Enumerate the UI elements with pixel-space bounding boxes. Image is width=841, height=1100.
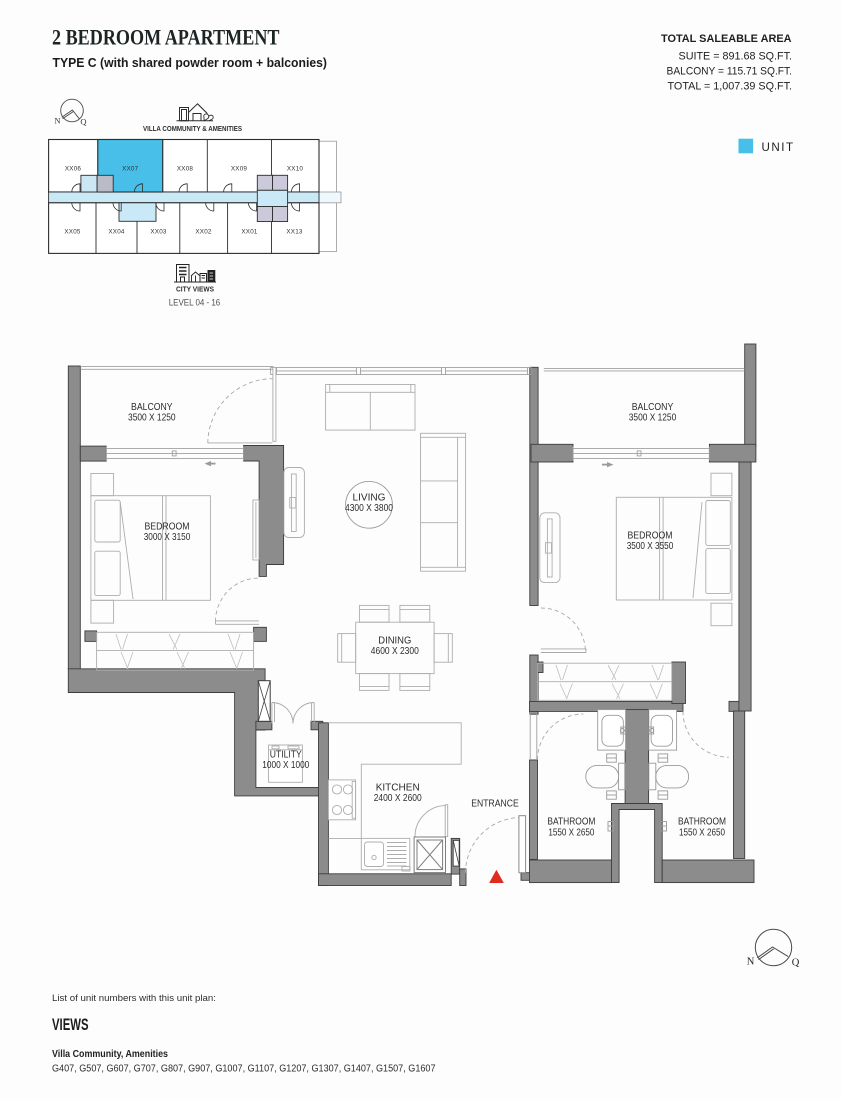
svg-text:3500 X 3550: 3500 X 3550 — [627, 541, 674, 552]
svg-text:KITCHEN: KITCHEN — [376, 783, 420, 794]
svg-text:Q: Q — [792, 958, 800, 969]
svg-text:3500 X 1250: 3500 X 1250 — [128, 412, 176, 423]
svg-text:XX01: XX01 — [241, 229, 258, 236]
svg-text:XX02: XX02 — [195, 229, 212, 236]
svg-text:G407, G507, G607, G707, G807,: G407, G507, G607, G707, G807, G907, G100… — [52, 1063, 436, 1074]
svg-text:BATHROOM: BATHROOM — [547, 817, 595, 828]
svg-text:Villa Community, Amenities: Villa Community, Amenities — [52, 1049, 168, 1060]
svg-text:XX09: XX09 — [231, 166, 248, 173]
svg-text:UTILITY: UTILITY — [270, 750, 302, 761]
svg-text:LIVING: LIVING — [353, 493, 386, 504]
svg-text:LEVEL 04 - 16: LEVEL 04 - 16 — [169, 298, 221, 308]
svg-text:1550 X 2650: 1550 X 2650 — [548, 828, 594, 839]
svg-text:XX10: XX10 — [287, 166, 304, 173]
svg-text:UNIT: UNIT — [762, 141, 795, 154]
svg-text:BALCONY = 115.71 SQ.FT.: BALCONY = 115.71 SQ.FT. — [667, 66, 793, 78]
svg-text:3000 X 3150: 3000 X 3150 — [144, 532, 191, 543]
svg-text:TOTAL = 1,007.39 SQ.FT.: TOTAL = 1,007.39 SQ.FT. — [668, 81, 793, 93]
svg-text:2 BEDROOM APARTMENT: 2 BEDROOM APARTMENT — [52, 25, 280, 50]
svg-text:DINING: DINING — [378, 636, 411, 647]
svg-text:SUITE = 891.68 SQ.FT.: SUITE = 891.68 SQ.FT. — [679, 51, 793, 63]
svg-text:XX06: XX06 — [65, 166, 82, 173]
svg-text:BATHROOM: BATHROOM — [678, 817, 726, 828]
svg-text:TYPE C (with shared powder roo: TYPE C (with shared powder room + balcon… — [53, 55, 328, 70]
svg-text:XX13: XX13 — [286, 229, 303, 236]
svg-text:XX03: XX03 — [150, 229, 167, 236]
svg-text:XX07: XX07 — [122, 166, 139, 173]
svg-text:XX05: XX05 — [64, 229, 81, 236]
svg-text:1550 X 2650: 1550 X 2650 — [679, 828, 725, 839]
svg-text:N: N — [747, 957, 755, 968]
svg-text:2400 X 2600: 2400 X 2600 — [374, 793, 422, 804]
svg-text:VIEWS: VIEWS — [52, 1015, 89, 1034]
svg-text:4300 X 3800: 4300 X 3800 — [345, 503, 393, 514]
svg-text:BEDROOM: BEDROOM — [628, 531, 673, 542]
svg-text:XX04: XX04 — [108, 229, 125, 236]
svg-text:4600 X 2300: 4600 X 2300 — [371, 646, 419, 657]
svg-text:N: N — [54, 116, 60, 126]
svg-text:VILLA COMMUNITY & AMENITIES: VILLA COMMUNITY & AMENITIES — [143, 124, 242, 133]
svg-text:3500 X 1250: 3500 X 1250 — [629, 412, 677, 423]
svg-text:CITY VIEWS: CITY VIEWS — [176, 287, 214, 294]
svg-text:XX08: XX08 — [177, 166, 194, 173]
svg-text:BEDROOM: BEDROOM — [145, 522, 190, 533]
svg-text:List of unit numbers with this: List of unit numbers with this unit plan… — [52, 993, 216, 1004]
svg-text:Q: Q — [80, 117, 86, 127]
svg-text:ENTRANCE: ENTRANCE — [471, 799, 519, 810]
svg-text:TOTAL SALEABLE AREA: TOTAL SALEABLE AREA — [661, 33, 792, 45]
svg-text:1000 X 1000: 1000 X 1000 — [262, 760, 309, 771]
